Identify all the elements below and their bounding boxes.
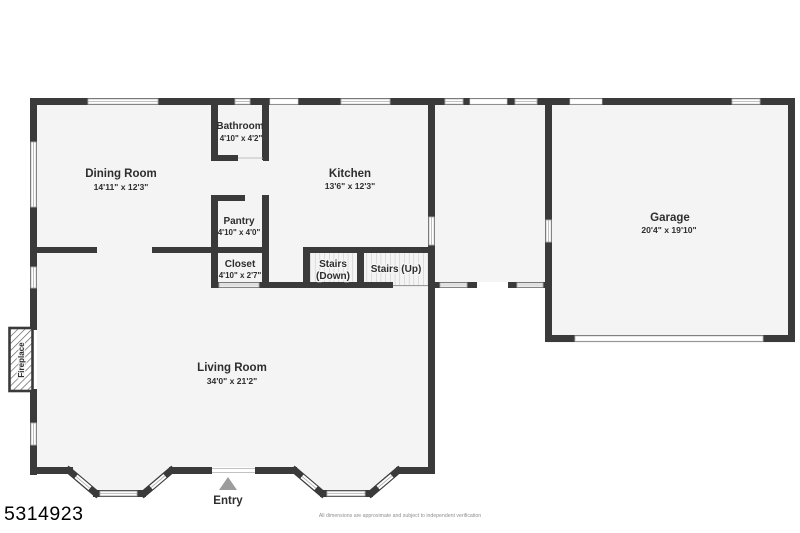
room-fills — [30, 98, 795, 494]
kitchen-label: Kitchen — [329, 168, 371, 180]
entry — [212, 467, 255, 490]
garage-door-symbol — [575, 336, 763, 341]
pantry-dims: 4'10" x 4'0" — [218, 228, 261, 237]
bathroom-dims: 4'10" x 4'2" — [220, 134, 263, 143]
dining-room-label: Dining Room — [85, 168, 157, 180]
back-door-opening — [477, 282, 508, 288]
stairs-down-label-line1: Stairs — [319, 259, 347, 270]
stairs-down-label-line2: (Down) — [316, 271, 350, 282]
window-symbol — [470, 99, 507, 104]
dining-room-dims: 14'11" x 12'3" — [94, 182, 149, 192]
window-symbol — [570, 99, 602, 104]
window-symbol — [270, 99, 298, 104]
fireplace-label: Fireplace — [17, 342, 26, 378]
stairs-up-label: Stairs (Up) — [371, 264, 422, 275]
mudroom-floor — [428, 98, 552, 288]
kitchen-dims: 13'6" x 12'3" — [325, 181, 375, 191]
pantry-label: Pantry — [223, 216, 255, 227]
floorplan-page: Fireplace Dining Room 14'11" x 12'3" Bat… — [0, 0, 800, 533]
entry-label: Entry — [213, 495, 243, 507]
disclaimer-text: All dimensions are approximate and subje… — [0, 513, 800, 519]
bathroom-label: Bathroom — [216, 121, 263, 132]
floorplan-drawing: Fireplace Dining Room 14'11" x 12'3" Bat… — [0, 0, 800, 533]
garage-label: Garage — [650, 212, 690, 224]
closet-label: Closet — [225, 259, 256, 270]
living-room-label: Living Room — [197, 362, 267, 374]
living-room-dims: 34'0" x 21'2" — [207, 376, 257, 386]
fireplace: Fireplace — [10, 328, 38, 391]
closet-dims: 4'10" x 2'7" — [219, 271, 262, 280]
entry-arrow-icon — [219, 477, 237, 490]
garage-dims: 20'4" x 19'10" — [641, 225, 696, 235]
